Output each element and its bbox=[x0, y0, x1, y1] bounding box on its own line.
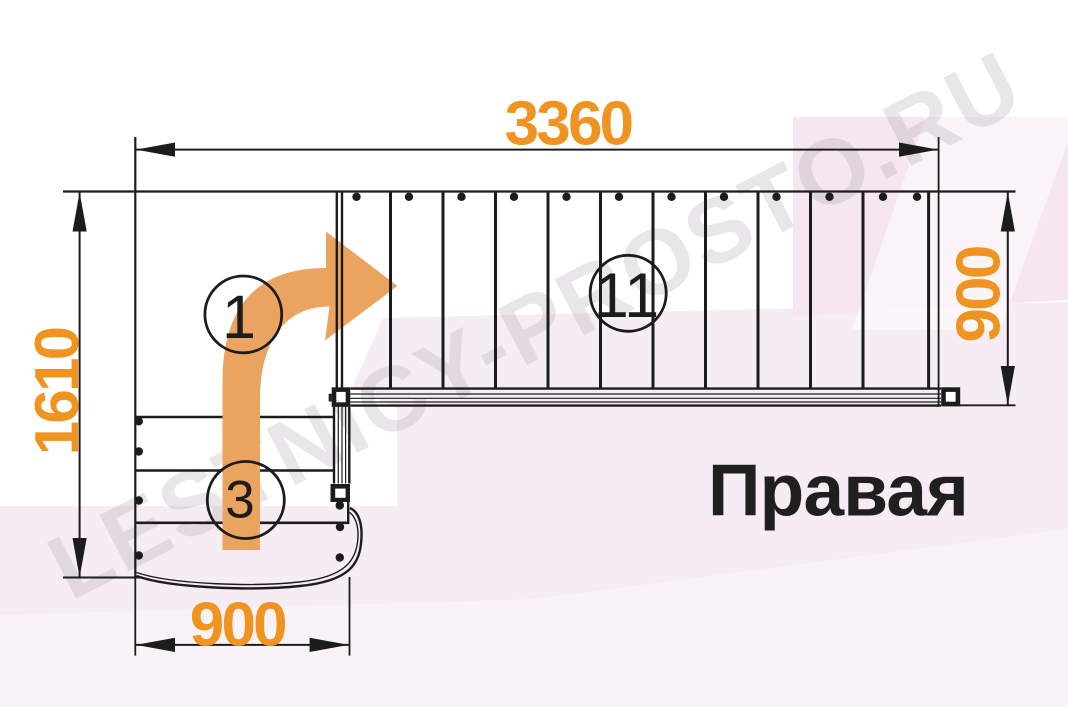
svg-text:1610: 1610 bbox=[23, 328, 92, 455]
svg-text:3: 3 bbox=[225, 471, 254, 530]
svg-text:Правая: Правая bbox=[708, 451, 968, 532]
svg-text:3360: 3360 bbox=[505, 90, 632, 159]
svg-text:900: 900 bbox=[945, 247, 1014, 342]
svg-text:900: 900 bbox=[190, 591, 285, 660]
svg-text:1: 1 bbox=[222, 283, 256, 351]
svg-text:11: 11 bbox=[594, 261, 659, 331]
